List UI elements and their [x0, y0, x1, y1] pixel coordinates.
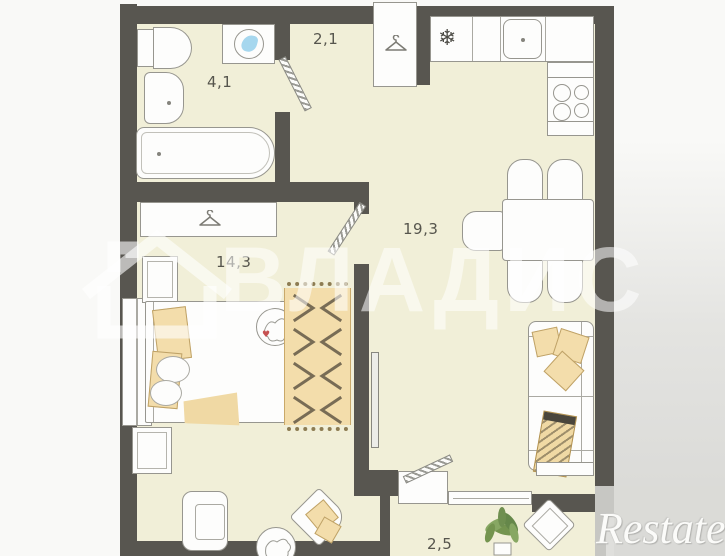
bedroom-cabinet [132, 427, 172, 474]
bathroom-area-label: 4,1 [207, 73, 232, 91]
corner-chair [288, 486, 350, 552]
toilet-tank [137, 29, 154, 67]
armchair [182, 491, 228, 551]
kitchen-sink [503, 19, 542, 59]
agency-watermark: Restate [596, 503, 725, 554]
kitchen-sink-drain [521, 38, 525, 42]
sofa-seat-line [529, 396, 593, 397]
burner [553, 84, 571, 102]
wall-living-sw-corner [354, 470, 398, 496]
sink-drain [167, 101, 171, 105]
cabinet-inner-line [137, 432, 167, 469]
bed-pillow [156, 356, 190, 383]
counter-divider [500, 17, 501, 61]
wall-hall-bottom [120, 182, 369, 202]
bathroom-sink [144, 72, 184, 124]
armchair-seat [195, 504, 225, 540]
stove [547, 77, 594, 122]
bed-pillow [150, 380, 182, 406]
burner [574, 103, 589, 118]
sofa-ottoman [536, 462, 594, 476]
hanger-icon [197, 210, 223, 230]
fridge-snowflake-icon: ❄ [438, 26, 456, 51]
tv [371, 352, 379, 448]
hall-wardrobe [373, 2, 417, 87]
burner [574, 85, 589, 100]
wall-bathroom-right-top [275, 24, 290, 60]
bathtub [136, 127, 275, 179]
balcony-chair [520, 498, 578, 556]
heart-icon: ♥ [262, 330, 270, 340]
brand-watermark: ВЛАДИС [220, 245, 647, 315]
counter-divider [545, 17, 546, 61]
burner [553, 103, 571, 121]
washing-machine [222, 24, 275, 64]
wall-hall-kitchen [417, 6, 430, 85]
corner-shade [614, 140, 725, 556]
counter-divider [472, 17, 473, 61]
balcony-area-label: 2,5 [427, 535, 452, 553]
house-logo-watermark [82, 228, 232, 340]
floor-plan-image: ❄ [0, 0, 725, 556]
hallway-area-label: 2,1 [313, 30, 338, 48]
bathtub-drain [157, 152, 161, 156]
balcony-window-frame [453, 498, 529, 499]
wall-balcony-left [380, 495, 390, 556]
hanger-icon [383, 35, 409, 55]
wall-bathroom-right-bottom [275, 112, 290, 184]
